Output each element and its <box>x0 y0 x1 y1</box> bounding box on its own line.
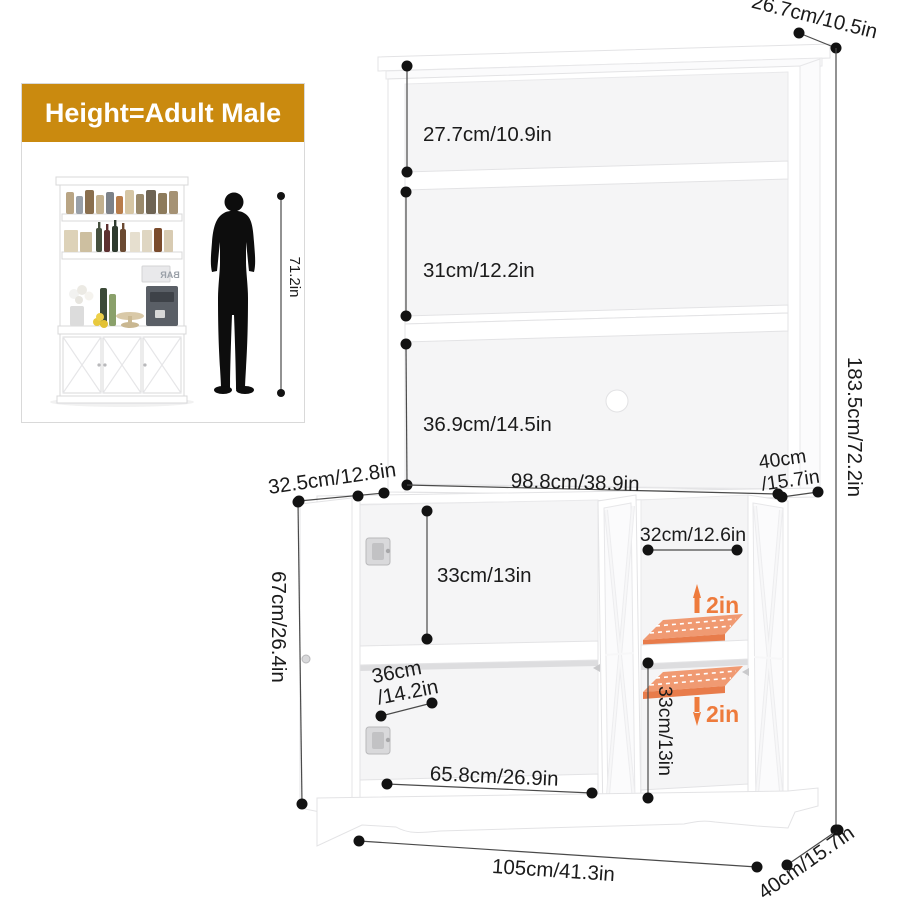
left-door-knob <box>302 655 310 663</box>
hutch-shelf-1-label: 27.7cm/10.9in <box>423 123 552 146</box>
door-hinge-top <box>366 538 390 565</box>
right-cabinet-width-label: 32cm/12.6in <box>640 524 746 546</box>
dim-base-depth: 40cm/15.7in <box>754 821 859 900</box>
hutch-shelf-3-label: 36.9cm/14.5in <box>423 413 552 436</box>
dim-total-height: 183.5cm/72.2in <box>831 48 867 836</box>
inset-header-title: Height=Adult Male <box>45 98 281 129</box>
left-door-width-label: 32.5cm/12.8in <box>267 458 398 499</box>
right-door-open <box>742 495 788 820</box>
shelf-up-adjust-label: 2in <box>706 592 739 618</box>
product-dimension-diagram: 26.7cm/10.5in 183.5cm/72.2in 27.7cm/10.9… <box>0 0 900 900</box>
dim-base-width: 105cm/41.3in <box>354 836 763 887</box>
base-depth-label: 40cm/15.7in <box>754 821 859 900</box>
middle-door-open <box>593 495 641 818</box>
plinth <box>317 788 818 846</box>
cable-hole <box>606 390 628 412</box>
right-cabinet-height-label: 33cm/13in <box>654 686 676 776</box>
inset-header: Height=Adult Male <box>22 84 304 142</box>
base-cabinet-height-label: 67cm/26.4in <box>267 571 290 683</box>
hutch-side-panel <box>800 59 820 497</box>
height-comparison-inset: Height=Adult Male <box>21 83 305 423</box>
door-hinge-bottom <box>366 727 390 754</box>
total-height-label: 183.5cm/72.2in <box>843 357 866 497</box>
hutch-shelf-2-label: 31cm/12.2in <box>423 259 535 282</box>
base-width-label: 105cm/41.3in <box>491 855 615 886</box>
left-cabinet-height-label: 33cm/13in <box>437 564 532 587</box>
top-depth-label: 26.7cm/10.5in <box>749 0 880 43</box>
shelf-down-adjust-label: 2in <box>706 701 739 727</box>
hutch-width-label: 98.8cm/38.9in <box>511 469 640 495</box>
